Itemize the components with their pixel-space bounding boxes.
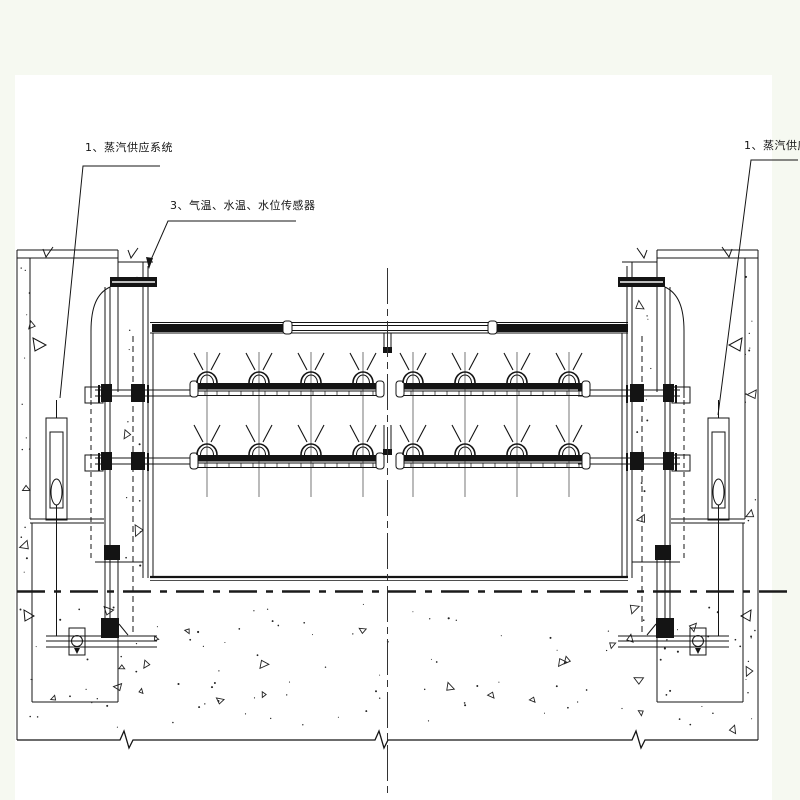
beam-joint-right — [488, 321, 497, 334]
drawing-canvas: 1、蒸汽供应系统 3、气温、水温、水位传感器 1、蒸汽供应系统 — [0, 0, 800, 800]
engineering-drawing: 1、蒸汽供应系统 3、气温、水温、水位传感器 1、蒸汽供应系统 — [0, 0, 800, 800]
beam-joint-left — [283, 321, 292, 334]
label-steam-supply-left: 1、蒸汽供应系统 — [85, 140, 173, 154]
paper-background — [15, 75, 772, 800]
label-sensors: 3、气温、水温、水位传感器 — [170, 198, 316, 212]
label-steam-supply-right: 1、蒸汽供应系统 — [744, 138, 800, 152]
